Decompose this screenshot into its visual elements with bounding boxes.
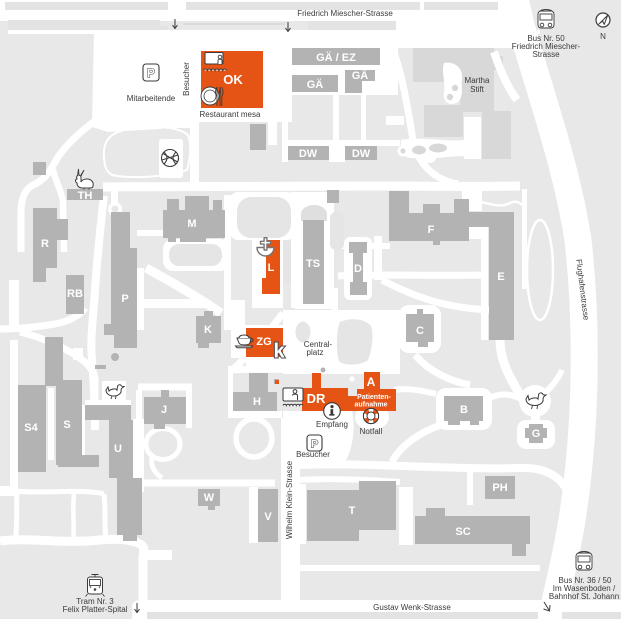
svg-text:Mitarbeitende: Mitarbeitende	[127, 94, 176, 103]
svg-text:V: V	[264, 511, 272, 523]
svg-text:J: J	[161, 404, 167, 416]
svg-text:platz: platz	[307, 348, 324, 357]
svg-text:A: A	[367, 375, 376, 389]
svg-text:T: T	[349, 505, 356, 517]
svg-text:TS: TS	[306, 258, 320, 270]
svg-text:N: N	[600, 32, 606, 41]
svg-text:D: D	[354, 263, 362, 275]
svg-text:TH: TH	[78, 190, 93, 202]
svg-text:SC: SC	[455, 526, 470, 538]
svg-text:Restaurant mesa: Restaurant mesa	[200, 110, 261, 119]
svg-text:Felix Platter-Spital: Felix Platter-Spital	[63, 605, 128, 614]
svg-text:Empfang: Empfang	[316, 420, 348, 429]
svg-text:R: R	[41, 238, 49, 250]
svg-text:W: W	[204, 492, 215, 504]
svg-text:S4: S4	[24, 422, 38, 434]
svg-text:DW: DW	[299, 148, 318, 160]
svg-text:M: M	[187, 218, 196, 230]
svg-text:L: L	[268, 262, 275, 274]
svg-text:Stift: Stift	[470, 85, 485, 94]
svg-text:Wilhelm Klein-Strasse: Wilhelm Klein-Strasse	[285, 460, 294, 539]
svg-text:DW: DW	[352, 148, 371, 160]
svg-text:Besucher: Besucher	[182, 62, 191, 96]
svg-text:PH: PH	[492, 482, 507, 494]
svg-text:Martha: Martha	[465, 76, 490, 85]
svg-text:Patienten-: Patienten-	[357, 394, 392, 401]
svg-text:ZG: ZG	[256, 336, 271, 348]
svg-text:G: G	[532, 428, 541, 440]
svg-text:F: F	[428, 224, 435, 236]
svg-text:P: P	[311, 439, 318, 451]
svg-text:Bahnhof St. Johann: Bahnhof St. Johann	[549, 592, 619, 601]
svg-text:S: S	[63, 419, 70, 431]
svg-text:OK: OK	[223, 72, 243, 87]
svg-text:GÄ / EZ: GÄ / EZ	[316, 51, 356, 64]
svg-text:Friedrich Miescher-Strasse: Friedrich Miescher-Strasse	[297, 9, 393, 18]
svg-text:P: P	[121, 293, 128, 305]
svg-text:P: P	[147, 68, 155, 80]
svg-text:K: K	[204, 324, 212, 336]
svg-text:C: C	[416, 325, 424, 337]
svg-text:DR: DR	[307, 391, 326, 406]
svg-text:H: H	[253, 396, 261, 408]
svg-text:Gustav Wenk-Strasse: Gustav Wenk-Strasse	[373, 603, 451, 612]
svg-text:k: k	[273, 341, 285, 363]
svg-text:Strasse: Strasse	[532, 50, 560, 59]
svg-text:U: U	[114, 443, 122, 455]
svg-text:RB: RB	[67, 288, 83, 300]
svg-text:Notfall: Notfall	[360, 427, 383, 436]
svg-text:GÄ: GÄ	[352, 69, 369, 82]
svg-text:E: E	[497, 271, 504, 283]
svg-text:aufnahme: aufnahme	[354, 402, 387, 409]
svg-text:B: B	[460, 404, 468, 416]
svg-text:GÄ: GÄ	[307, 78, 324, 91]
